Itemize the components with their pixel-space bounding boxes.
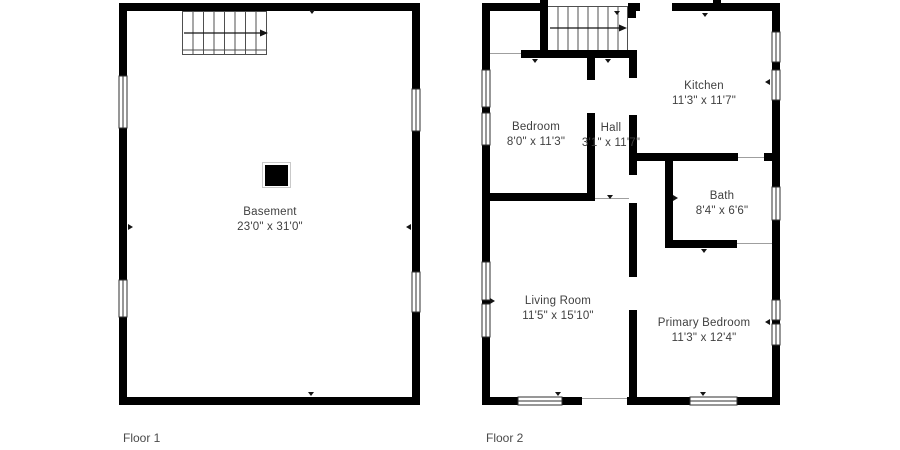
window-icon [772,187,780,220]
floor1-stairs [183,12,269,55]
window-icon [482,262,490,300]
window-icon [482,304,490,337]
door-marker-icon [765,79,770,85]
window-icon [412,89,420,131]
door-marker-icon [490,298,495,304]
stairs-direction-arrow [184,30,268,37]
chimney-icon [263,163,291,188]
door-marker-icon [128,224,133,230]
floor1-outer-walls [119,3,420,405]
window-icon [772,32,780,62]
door-marker-icon [765,319,770,325]
door-marker-icon [309,10,315,14]
door-marker-icon [555,392,561,396]
floorplan-drawing [0,0,900,450]
window-icon [119,280,127,317]
floor2-interior-walls [482,0,780,405]
window-icon [119,76,127,128]
floorplan-canvas: Basement 23'0" x 31'0" Bedroom 8'0" x 11… [0,0,900,450]
door-marker-icon [614,11,620,15]
floor2-plan [482,0,780,405]
door-marker-icon [406,224,411,230]
floor1-plan [119,3,420,405]
door-marker-icon [702,13,708,17]
door-marker-icon [308,392,314,396]
window-icon [412,272,420,312]
window-icon [772,324,780,345]
door-marker-icon [605,59,611,63]
window-icon [690,397,737,405]
door-marker-icon [532,59,538,63]
door-marker-icon [700,392,706,396]
door-marker-icon [701,249,707,253]
window-icon [518,397,562,405]
floor1-windows [119,76,420,317]
window-icon [482,113,490,145]
window-icon [772,70,780,100]
floor1-door-markers [128,10,411,396]
door-marker-icon [673,195,678,201]
window-icon [772,300,780,320]
window-icon [482,70,490,107]
